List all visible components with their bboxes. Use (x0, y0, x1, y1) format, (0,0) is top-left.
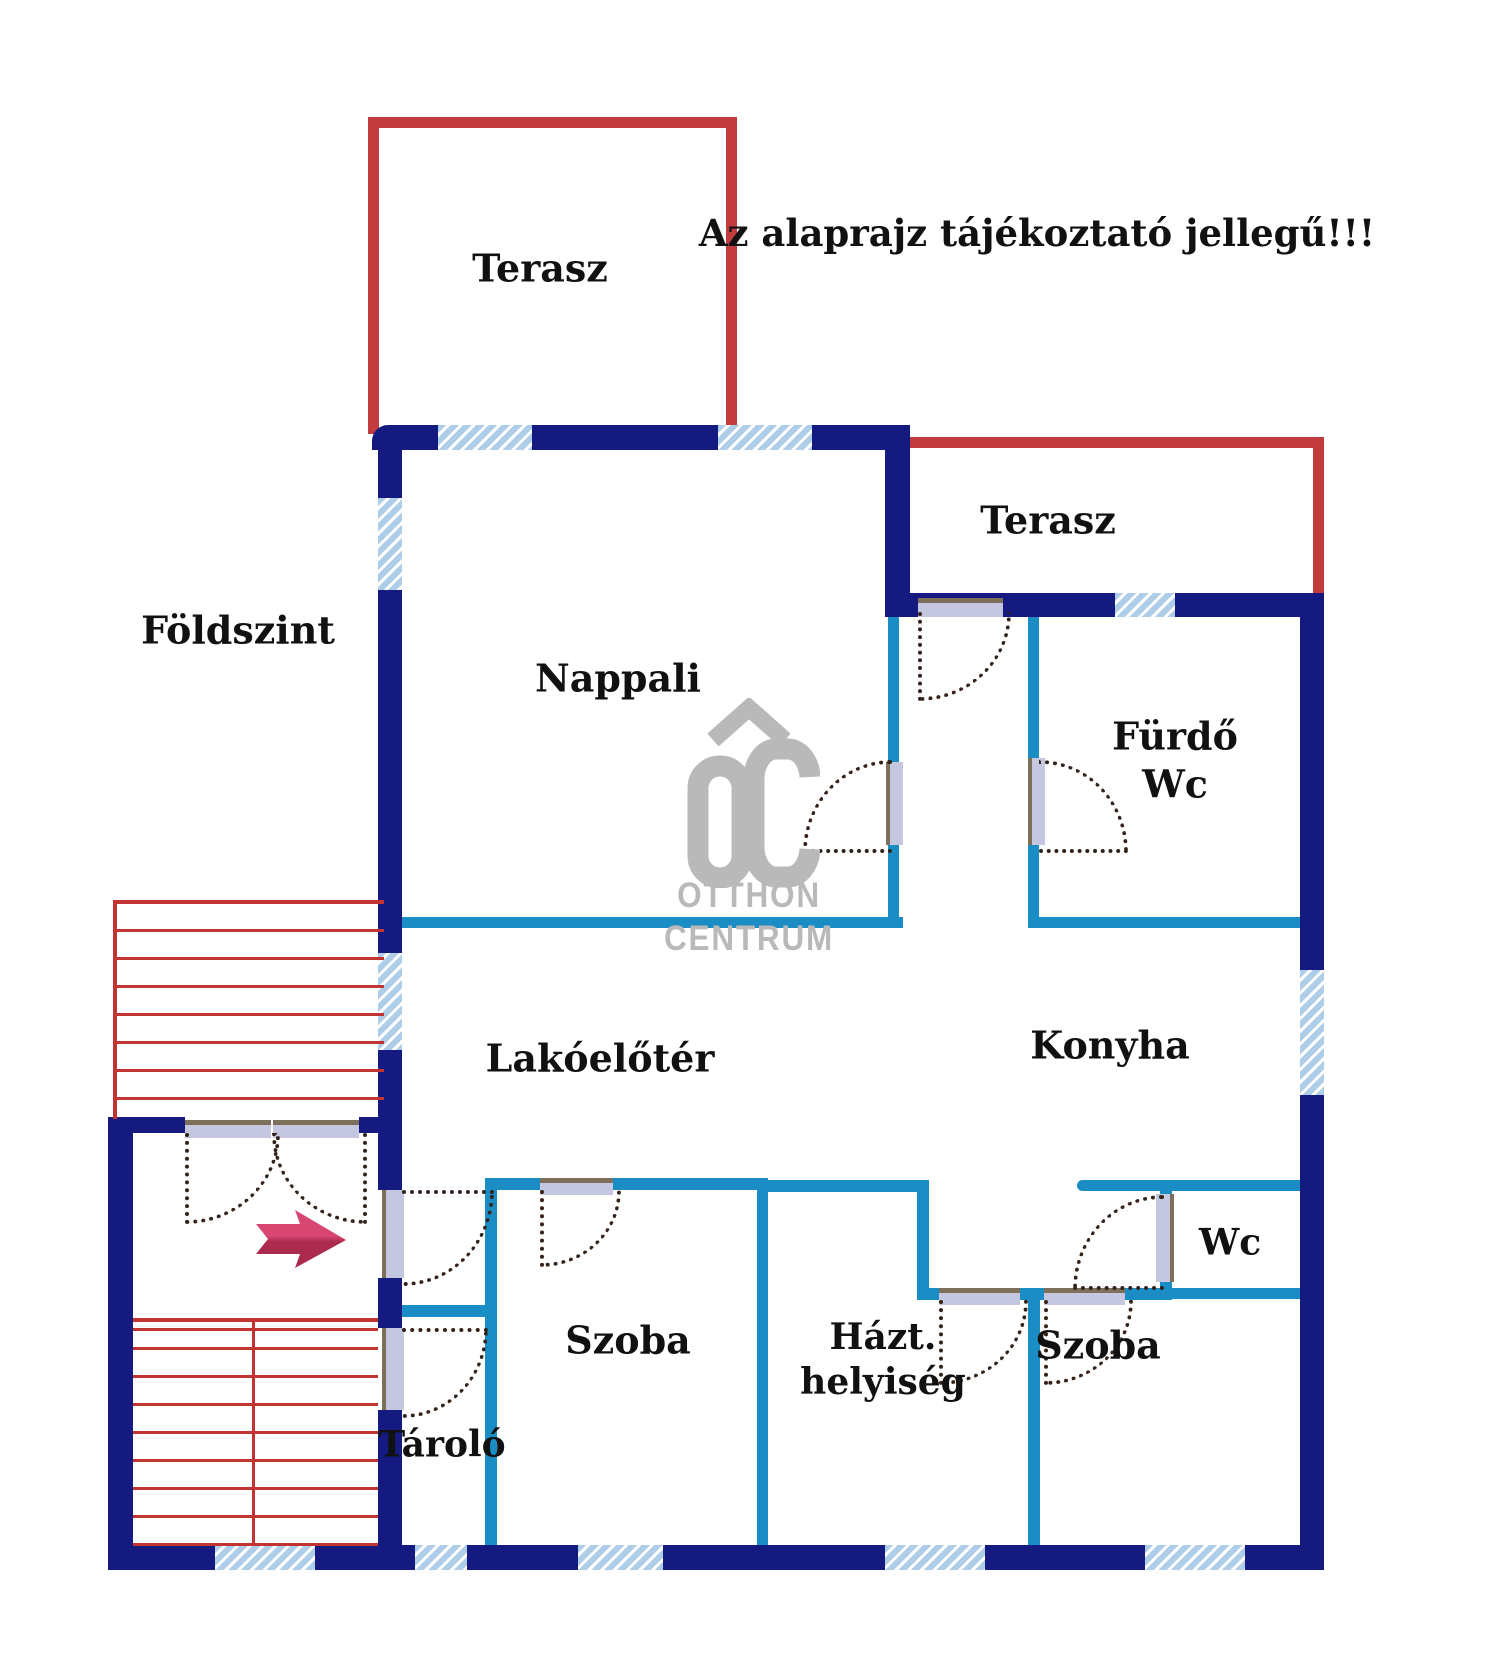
stair-divider (252, 1318, 255, 1545)
interior-wall-furdo-bottom (1028, 917, 1300, 928)
window (438, 425, 532, 450)
window (1115, 593, 1175, 617)
stairs-upper (113, 900, 384, 1119)
room-label-tarolo: Tároló (378, 1423, 505, 1468)
vestibule-wall-top (108, 1117, 185, 1133)
interior-wall-tarolo-right (485, 1178, 497, 1545)
oc-logo-mark (680, 698, 820, 888)
stairs-lower (133, 1318, 378, 1549)
door-swing-arc (540, 1190, 621, 1267)
interior-wall-hazt-top (768, 1180, 917, 1192)
exterior-wall-nappali-right (885, 448, 910, 617)
door-swing-arc (402, 1328, 488, 1418)
interior-wall-corridor-left (888, 845, 899, 928)
room-label-furdo-line2: Wc (1112, 760, 1238, 808)
interior-wall-anteroom-bottom (1020, 1288, 1044, 1300)
interior-wall-wc-bottom (1160, 1288, 1300, 1299)
door-swing-arc (1073, 1195, 1164, 1290)
window (415, 1545, 467, 1570)
stair-step (133, 1328, 378, 1331)
door-leaf (382, 1190, 404, 1278)
door-swing-arc (402, 1190, 494, 1286)
interior-wall-corridor-left (888, 617, 899, 762)
interior-wall-tarolo-top (402, 1305, 485, 1317)
window (885, 1545, 985, 1570)
room-label-hazt-line2: helyiség (800, 1360, 966, 1405)
room-label-szoba-right: Szoba (1035, 1321, 1161, 1369)
vestibule-wall-top (359, 1117, 402, 1133)
room-label-wc: Wc (1199, 1221, 1261, 1266)
room-label-furdo: Fürdő Wc (1112, 713, 1238, 808)
interior-wall-szoba-right (757, 1178, 768, 1545)
logo-text-otthon: OTTHON (677, 876, 821, 916)
interior-wall-szoba-top (613, 1178, 757, 1190)
door-leaf (382, 1328, 404, 1410)
terrace-outline-right (910, 437, 1324, 604)
window (718, 425, 812, 450)
room-label-terasz-top: Terasz (472, 244, 608, 292)
logo-text-centrum: CENTRUM (664, 919, 834, 959)
interior-wall-szoba-top (497, 1178, 540, 1190)
door-swing-arc (918, 612, 1011, 701)
room-label-furdo-line1: Fürdő (1112, 713, 1238, 761)
interior-wall-anteroom-left (917, 1180, 929, 1300)
window (378, 498, 402, 590)
warning-text: Az alaprajz tájékoztató jellegű!!! (699, 210, 1375, 256)
interior-wall-anteroom-bottom (917, 1288, 939, 1300)
room-label-konyha: Konyha (1030, 1021, 1190, 1069)
vestibule-wall-left (108, 1117, 133, 1545)
window (1145, 1545, 1245, 1570)
floor-title: Földszint (141, 606, 335, 654)
room-label-hazt-line1: Házt. (800, 1315, 966, 1360)
entrance-arrow-icon (250, 1202, 350, 1272)
room-label-szoba-left: Szoba (565, 1316, 691, 1364)
room-label-terasz-right: Terasz (980, 496, 1116, 544)
window (1300, 970, 1324, 1095)
vestibule-wall-right (378, 1133, 402, 1190)
vestibule-wall-right (378, 1278, 402, 1328)
interior-wall-corridor-right (1028, 617, 1039, 758)
interior-wall-wc-top (1077, 1180, 1300, 1191)
room-label-hazt: Házt. helyiség (800, 1315, 966, 1405)
room-label-nappali: Nappali (535, 654, 701, 702)
window (578, 1545, 663, 1570)
room-label-lakoeloter: Lakóelőtér (486, 1034, 715, 1082)
interior-wall-corridor-right (1028, 845, 1039, 928)
floor-plan: OTTHON CENTRUM Az alaprajz tájékoztató j… (0, 0, 1500, 1660)
